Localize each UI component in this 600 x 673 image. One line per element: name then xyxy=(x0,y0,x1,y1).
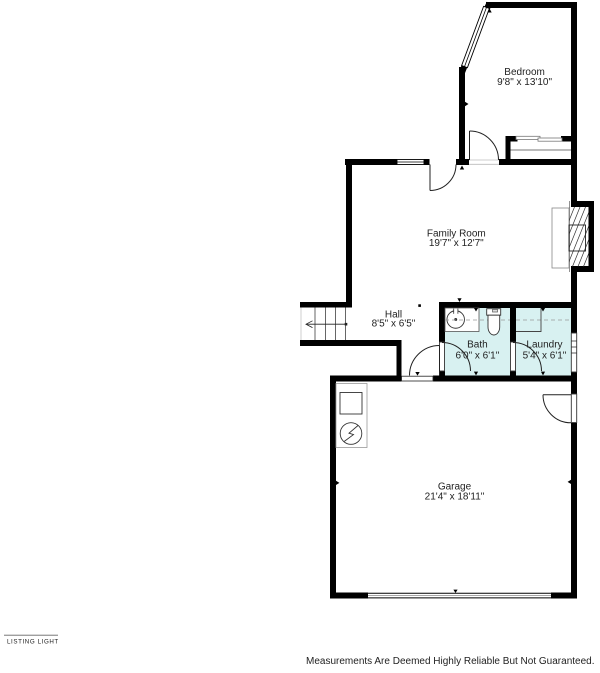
svg-text:Laundry: Laundry xyxy=(526,340,562,351)
svg-text:Bath: Bath xyxy=(467,340,488,351)
svg-text:21'4" x 18'11": 21'4" x 18'11" xyxy=(425,491,485,502)
svg-text:8'5" x 6'5": 8'5" x 6'5" xyxy=(372,319,416,330)
svg-text:6'0" x 6'1": 6'0" x 6'1" xyxy=(456,350,500,361)
svg-text:19'7" x 12'7": 19'7" x 12'7" xyxy=(429,238,484,249)
svg-text:5'4" x 6'1": 5'4" x 6'1" xyxy=(523,350,567,361)
svg-text:Measurements Are Deemed Highly: Measurements Are Deemed Highly Reliable … xyxy=(306,656,594,667)
svg-text:LISTING LIGHT: LISTING LIGHT xyxy=(7,639,59,646)
svg-text:9'8" x 13'10": 9'8" x 13'10" xyxy=(497,77,552,88)
